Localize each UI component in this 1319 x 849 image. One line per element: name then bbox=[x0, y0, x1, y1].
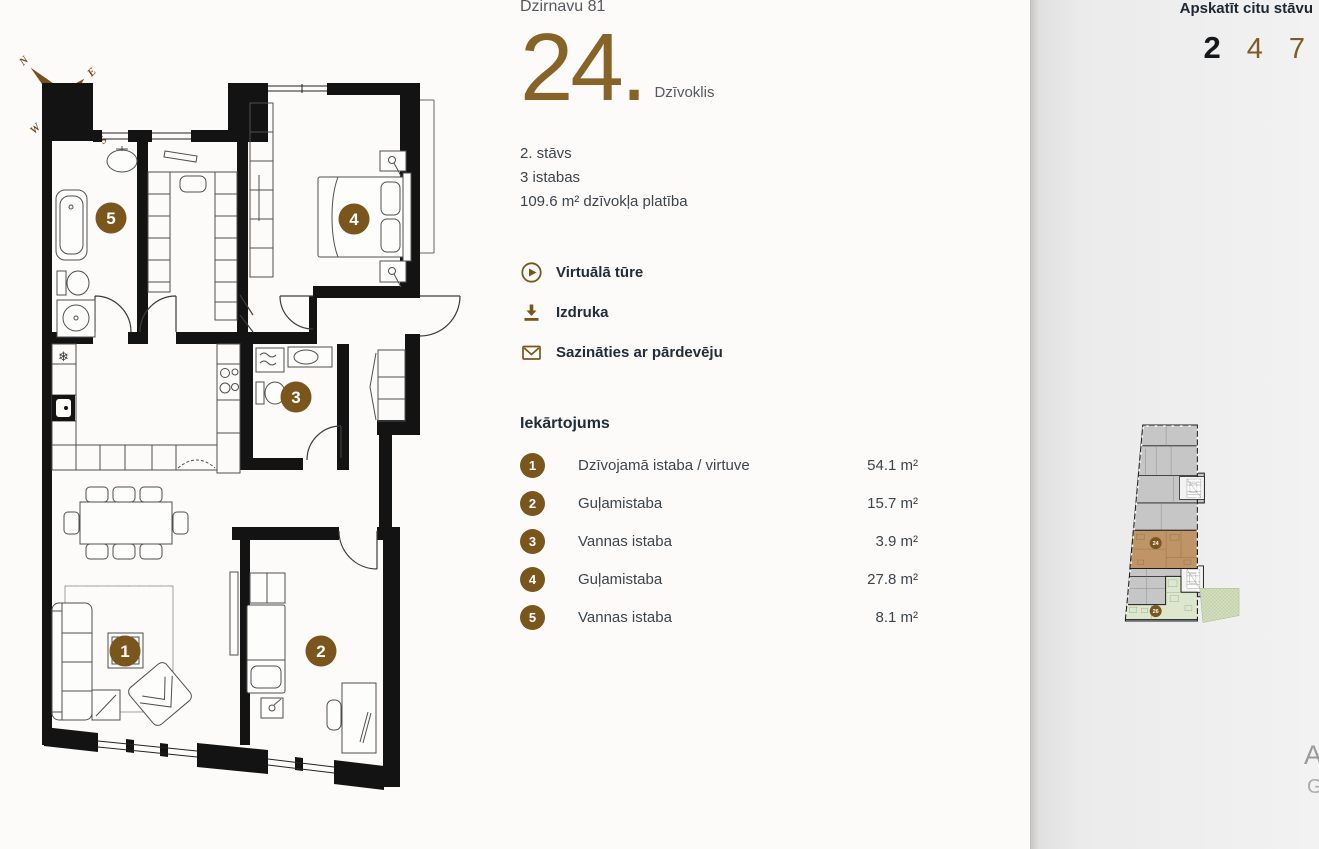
layout-section-title: Iekārtojums bbox=[520, 415, 610, 433]
room-label: Guļamistaba bbox=[578, 571, 662, 588]
room-area: 15.7 m² bbox=[867, 495, 918, 512]
room-badge-1: 1 bbox=[120, 642, 129, 661]
print-label: Izdruka bbox=[556, 304, 609, 321]
rooms-info: 3 istabas bbox=[520, 166, 688, 190]
room-area: 27.8 m² bbox=[867, 571, 918, 588]
corridor-closet bbox=[148, 151, 237, 320]
room-badge-5: 5 bbox=[106, 209, 115, 228]
floor-option-4[interactable]: 4 bbox=[1247, 35, 1263, 64]
room-list-item: 1 Dzīvojamā istaba / virtuve 54.1 m² bbox=[520, 446, 918, 484]
room-label: Dzīvojamā istaba / virtuve bbox=[578, 457, 750, 474]
apartment-number: 24. bbox=[520, 28, 644, 109]
room-list-item: 2 Guļamistaba 15.7 m² bbox=[520, 484, 918, 522]
download-icon bbox=[520, 301, 543, 324]
svg-text:W: W bbox=[28, 120, 44, 136]
apartment-floor-plan: N E S W bbox=[0, 0, 480, 849]
floor-overview-panel: Apskatīt citu stāvu 2 4 7 bbox=[1030, 0, 1319, 849]
svg-text:26: 26 bbox=[1153, 609, 1159, 615]
svg-text:N: N bbox=[16, 53, 32, 69]
contact-seller-button[interactable]: Sazināties ar pārdevēju bbox=[520, 332, 723, 372]
hall-closet bbox=[370, 350, 405, 421]
floor-info: 2. stāvs bbox=[520, 142, 688, 166]
apartment-page: N E S W bbox=[0, 0, 1319, 849]
play-icon bbox=[520, 261, 543, 284]
apartment-title: 24. Dzīvoklis bbox=[520, 28, 714, 109]
room-number-badge: 4 bbox=[520, 567, 545, 592]
room-badge-4: 4 bbox=[349, 210, 359, 229]
kitchen-counters: ❄ bbox=[52, 344, 240, 473]
room-area: 8.1 m² bbox=[875, 609, 918, 626]
print-button[interactable]: Izdruka bbox=[520, 292, 723, 332]
room-number-badge: 3 bbox=[520, 529, 545, 554]
room-area: 54.1 m² bbox=[867, 457, 918, 474]
contact-seller-label: Sazināties ar pārdevēju bbox=[556, 344, 723, 361]
room-number-badge: 2 bbox=[520, 491, 545, 516]
room-number-badge: 1 bbox=[520, 453, 545, 478]
svg-text:E: E bbox=[84, 66, 98, 80]
cutoff-watermark-line1: Ac bbox=[1304, 740, 1319, 771]
building-mini-plan[interactable]: 24 26 bbox=[1051, 422, 1311, 838]
bedroom-4-furniture bbox=[250, 103, 411, 287]
room-list: 1 Dzīvojamā istaba / virtuve 54.1 m² 2 G… bbox=[520, 446, 918, 636]
room-list-item: 3 Vannas istaba 3.9 m² bbox=[520, 522, 918, 560]
room-label: Vannas istaba bbox=[578, 609, 672, 626]
floor-option-7[interactable]: 7 bbox=[1289, 35, 1305, 64]
floor-selector-title: Apskatīt citu stāvu bbox=[1180, 0, 1313, 17]
action-links: Virtuālā tūre Izdruka Sazināties ar pārd… bbox=[520, 252, 723, 372]
stairwell-upper bbox=[1180, 477, 1205, 500]
terrace bbox=[1200, 588, 1239, 622]
floor-option-2[interactable]: 2 bbox=[1203, 32, 1220, 63]
area-info: 109.6 m² dzīvokļa platība bbox=[520, 190, 688, 214]
bathroom-5-fixtures bbox=[56, 146, 137, 337]
room-list-item: 4 Guļamistaba 27.8 m² bbox=[520, 560, 918, 598]
virtual-tour-button[interactable]: Virtuālā tūre bbox=[520, 252, 723, 292]
envelope-icon bbox=[520, 341, 543, 364]
room-label: Vannas istaba bbox=[578, 533, 672, 550]
living-room-furniture bbox=[52, 487, 238, 728]
room-number-badge: 5 bbox=[520, 605, 545, 630]
cutoff-watermark-line2: Go bbox=[1307, 776, 1319, 799]
svg-text:24: 24 bbox=[1153, 541, 1159, 547]
apartment-details: 2. stāvs 3 istabas 109.6 m² dzīvokļa pla… bbox=[520, 142, 688, 214]
floor-selector: 2 4 7 bbox=[1203, 32, 1305, 64]
room-area: 3.9 m² bbox=[875, 533, 918, 550]
virtual-tour-label: Virtuālā tūre bbox=[556, 264, 643, 281]
apartment-label: Dzīvoklis bbox=[654, 84, 714, 101]
room-list-item: 5 Vannas istaba 8.1 m² bbox=[520, 598, 918, 636]
room-badge-3: 3 bbox=[291, 388, 300, 407]
fridge-icon: ❄ bbox=[58, 349, 69, 364]
room-badge-2: 2 bbox=[316, 642, 325, 661]
room-label: Guļamistaba bbox=[578, 495, 662, 512]
mini-apartment-24[interactable] bbox=[1130, 530, 1198, 568]
